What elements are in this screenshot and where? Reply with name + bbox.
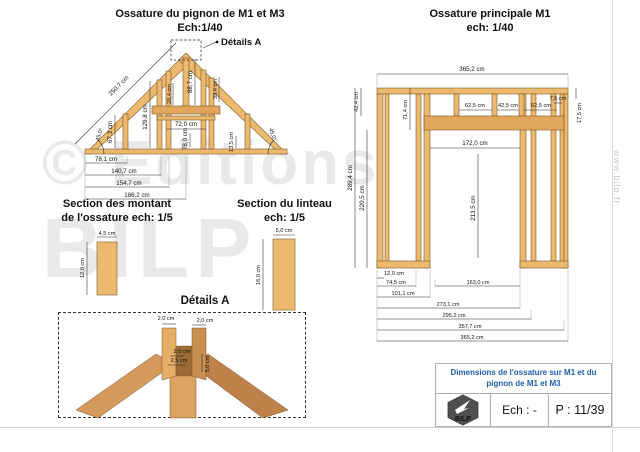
details-a-drawing: 2,0 cm 2,0 cm 2,0 cm 2,5 cm 5,0 cm (58, 312, 306, 418)
section-linteau-title-line2: ech: 1/5 (212, 212, 357, 226)
principale-dim-height: 289,4 cm (347, 165, 354, 190)
linteau-dim-width: 5,0 cm (276, 228, 293, 234)
principale-dim-right-upper: 17,5 cm (577, 103, 583, 123)
bilp-logo: BILP (436, 394, 491, 426)
pignon-dim-stud-left: 67,3 cm (107, 121, 114, 143)
section-montant-title-line1: Section des montant (42, 198, 192, 212)
pignon-dim-opening-width: 72,0 cm (175, 121, 197, 128)
pignon-title-line1: Ossature du pignon de M1 et M3 (88, 8, 312, 22)
pignon-dim-slope: 250,7 cm (107, 74, 130, 97)
plan-page: © Editions BILP www.bilp.fr Ossature du … (0, 0, 640, 452)
details-dim-5: 5,0 cm (205, 355, 211, 372)
montant-dim-width: 4,5 cm (99, 231, 116, 237)
pignon-detail-callout-label: Détails A (221, 37, 261, 48)
pignon-dim-base1: 78,1 cm (95, 156, 117, 163)
title-block-title-line2: pignon de M1 et M3 (451, 379, 597, 389)
section-montant-title: Section des montant de l'ossature ech: 1… (42, 198, 192, 226)
principale-drawing: 365,2 cm 42,4 cm 289,4 cm 220,5 cm 71,4 … (348, 58, 640, 350)
pignon-dim-opening-height: 78,0 cm (182, 128, 189, 150)
details-dim-1: 2,0 cm (158, 316, 175, 322)
principale-dim-b1: 74,5 cm (386, 280, 406, 286)
principale-dim-b3: 101,1 cm (391, 291, 414, 297)
principale-dim-bay3: 62,5 cm (531, 103, 551, 109)
pignon-dim-base3: 154,7 cm (116, 180, 141, 187)
principale-dim-bay1: 62,5 cm (465, 103, 485, 109)
page-number: P : 11/39 (549, 394, 611, 426)
pignon-dim-right-upper: 39,4 cm (213, 79, 219, 99)
scale-value: Ech : - (491, 394, 549, 426)
pignon-dim-ridge: 88,7 cm (187, 71, 194, 93)
principale-dim-opening-width: 172,0 cm (462, 140, 487, 147)
pignon-dim-collar: 28,4 cm (167, 84, 173, 104)
pignon-drawing: 250,7 cm 45,0° 45,0° 67,3 cm 129,8 cm 28… (40, 32, 330, 224)
principale-scale-label: ech: 1/40 (400, 22, 580, 36)
principale-dim-base-plate: 12,0 cm (384, 271, 404, 277)
principale-dim-top-width: 365,2 cm (459, 66, 484, 73)
principale-title: Ossature principale M1 ech: 1/40 (400, 8, 580, 36)
details-dim-3: 2,0 cm (174, 349, 191, 355)
principale-dim-b5: 295,2 cm (442, 313, 465, 319)
bilp-logo-icon: BILP (445, 394, 481, 426)
pignon-dim-base2: 140,7 cm (111, 168, 136, 175)
principale-dim-bay2: 42,5 cm (498, 103, 518, 109)
section-linteau-title: Section du linteau ech: 1/5 (212, 198, 357, 226)
section-montant-title-line2: de l'ossature ech: 1/5 (42, 212, 192, 226)
principale-dim-right-gap: 7,5 cm (550, 96, 567, 102)
principale-dim-b6: 357,7 cm (458, 324, 481, 330)
principale-dim-b7: 365,2 cm (460, 335, 483, 341)
principale-dim-b2: 163,0 cm (466, 280, 489, 286)
pignon-dim-right-lower: 13,5 cm (229, 132, 235, 152)
principale-dim-stud-top: 71,4 cm (403, 100, 409, 120)
details-dim-4: 2,5 cm (171, 358, 188, 364)
montant-section-profile (97, 242, 117, 295)
principale-dim-opening-height: 213,5 cm (470, 195, 477, 220)
linteau-section-profile (273, 239, 295, 310)
pignon-dim-stud-mid: 129,8 cm (142, 104, 149, 129)
principale-dim-left-lower: 220,5 cm (359, 185, 366, 210)
section-linteau-title-line1: Section du linteau (212, 198, 357, 212)
principale-dim-b4: 273,1 cm (436, 302, 459, 308)
title-block: Dimensions de l'ossature sur M1 et du pi… (435, 363, 612, 427)
principale-title-line1: Ossature principale M1 (400, 8, 580, 22)
title-block-title: Dimensions de l'ossature sur M1 et du pi… (436, 364, 611, 394)
bilp-logo-text: BILP (455, 416, 471, 423)
montant-dim-height: 12,0 cm (80, 258, 86, 278)
page-bottom-border (0, 427, 640, 428)
title-block-title-line1: Dimensions de l'ossature sur M1 et du (451, 368, 597, 378)
details-a-title: Détails A (150, 294, 260, 308)
details-dim-2: 2,0 cm (197, 318, 214, 324)
details-a-joint (76, 328, 288, 418)
linteau-dim-height: 16,0 cm (256, 265, 262, 285)
